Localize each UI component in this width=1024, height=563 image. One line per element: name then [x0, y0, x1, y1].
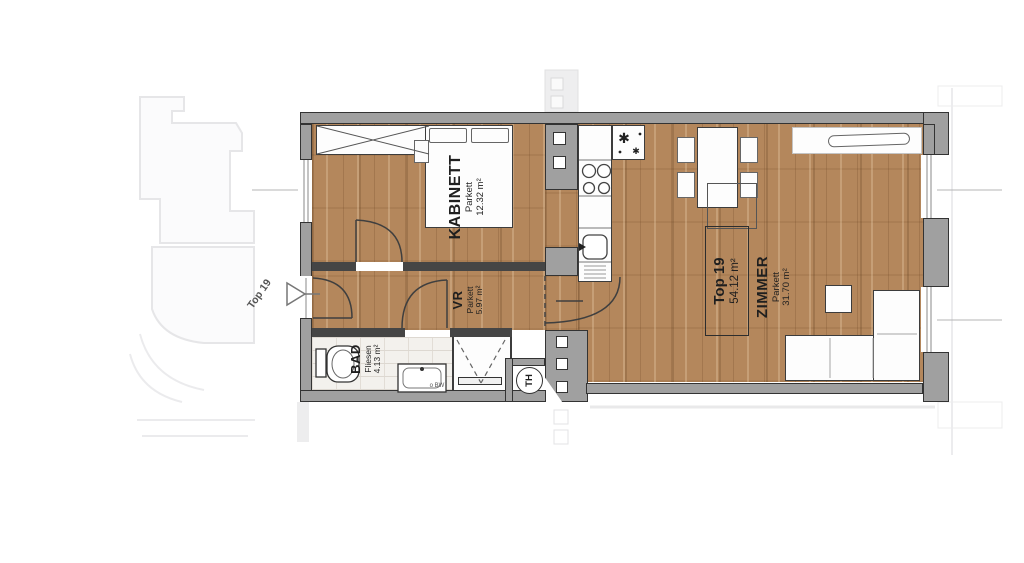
room-label-bad: BAD Fliesen 4.13 m²: [347, 324, 385, 394]
adjacent-curves: [130, 334, 255, 436]
rug-outline: [707, 183, 757, 229]
wall-bottom-right: [586, 383, 923, 394]
chair: [740, 137, 758, 163]
floor-passage: [545, 276, 578, 330]
unit-area: 54.12 m²: [729, 258, 742, 303]
wall-kitchen-lower: [545, 247, 578, 276]
coffee-table: [825, 285, 852, 313]
entrance-opening: [300, 276, 312, 318]
room-area: 12.32 m²: [476, 178, 487, 216]
wall-top: [300, 112, 935, 124]
entrance-label: Top 19: [245, 277, 274, 311]
wardrobe: [316, 125, 430, 155]
wall-right-lower: [923, 352, 949, 402]
wall-kabinett-bottom-a: [312, 262, 356, 271]
floor-niche: [545, 190, 578, 247]
fridge-freezer: [612, 125, 645, 160]
room-name: BAD: [349, 344, 364, 374]
window-right-upper: [921, 155, 935, 218]
flue-box: [556, 358, 568, 370]
shower-step: [458, 377, 502, 385]
floorplan-canvas: ✱ ✱ o BW: [0, 0, 1024, 563]
wall-right-upper: [923, 124, 935, 155]
flue-box: [556, 336, 568, 348]
room-label-kabinett: KABINETT Parkett 12.32 m²: [445, 132, 489, 262]
kitchen-counter: [578, 125, 612, 282]
room-label-zimmer: ZIMMER Parkett 31.70 m²: [754, 232, 794, 342]
room-name: KABINETT: [447, 155, 465, 240]
room-name: ZIMMER: [755, 256, 772, 318]
flue-box: [553, 156, 566, 169]
unit-title: Top 19: [712, 257, 729, 304]
room-area: 4.13 m²: [373, 345, 383, 374]
unit-label-box: Top 19 54.12 m²: [705, 226, 749, 336]
floor-vr: [312, 271, 545, 330]
window-right-lower: [921, 287, 935, 352]
window-left: [298, 160, 312, 222]
chair: [677, 172, 695, 198]
wall-right-pier: [923, 218, 949, 287]
shower: [452, 335, 512, 395]
adjacent-building-outline: [140, 97, 254, 343]
wall-nook-left: [505, 358, 513, 402]
room-area: 5.97 m²: [475, 286, 485, 315]
flue-box: [556, 381, 568, 393]
wall-left-middle: [300, 222, 312, 278]
flue-box: [553, 132, 566, 145]
wall-left-upper: [300, 124, 312, 160]
boiler-label: TH: [516, 367, 543, 394]
nightstand: [414, 140, 429, 163]
room-name: VR: [451, 290, 466, 309]
sofa-vertical: [873, 290, 920, 381]
room-area: 31.70 m²: [782, 268, 793, 306]
chair: [677, 137, 695, 163]
room-label-vr: VR Parkett 5.97 m²: [450, 260, 486, 340]
